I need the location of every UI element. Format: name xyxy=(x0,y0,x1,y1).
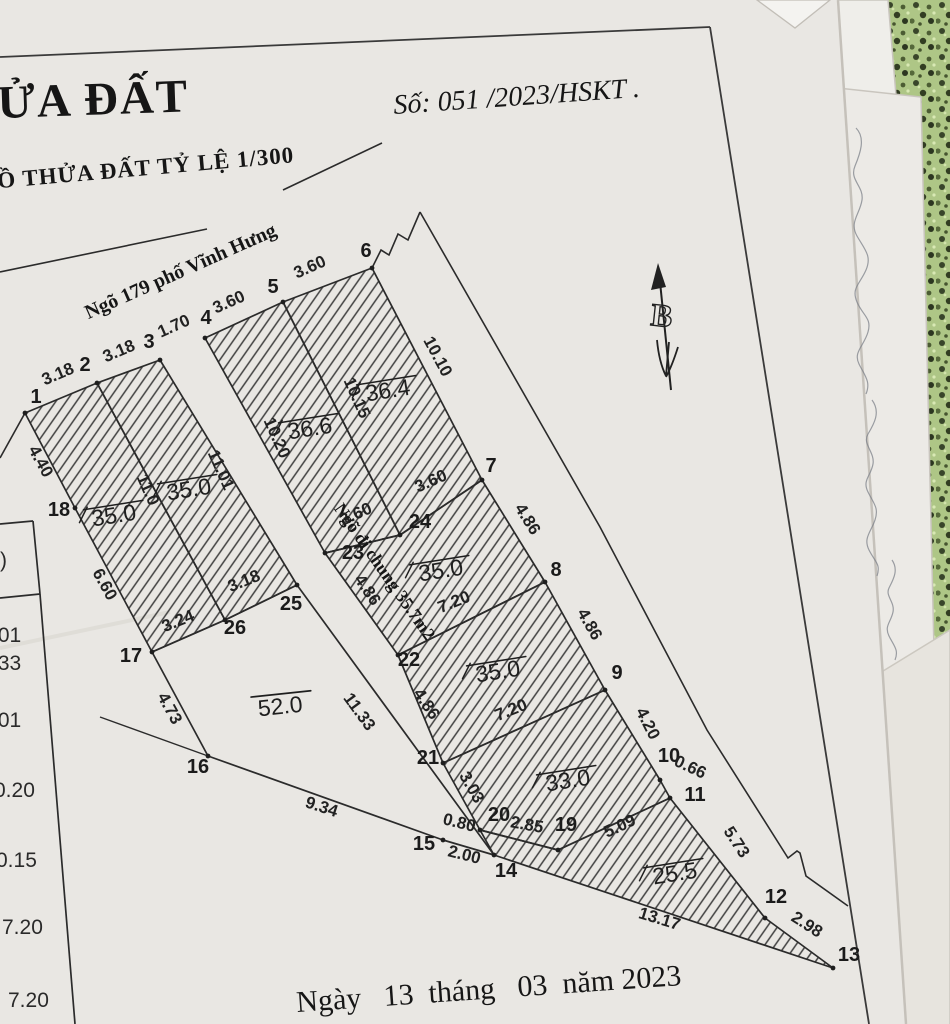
vertex-26-label: 26 xyxy=(224,617,246,639)
vertex-25-label: 25 xyxy=(280,593,302,615)
side-table-row: .01 xyxy=(0,709,21,732)
vertex-18-label: 18 xyxy=(48,499,70,521)
vertex-11-label: 11 xyxy=(684,784,705,806)
photographed-survey-document: ỬA ĐẤT Số: 051 /2023/HSKT . Ồ THỬA ĐẤT T… xyxy=(0,0,950,1024)
vertex-3-label: 3 xyxy=(143,331,154,353)
vertex-17-label: 17 xyxy=(120,645,142,667)
vertex-19-label: 19 xyxy=(555,814,577,836)
vertex-6-label: 6 xyxy=(360,240,371,262)
vertex-7-label: 7 xyxy=(485,455,496,477)
vertex-13-label: 13 xyxy=(838,944,860,966)
side-table-row: 7.20 xyxy=(8,989,49,1012)
vertex-20-label: 20 xyxy=(488,804,510,826)
vertex-14-label: 14 xyxy=(495,860,518,882)
side-table-row: 7.20 xyxy=(2,916,43,939)
vertex-4-label: 4 xyxy=(200,307,212,329)
vertex-24-label: 24 xyxy=(409,511,432,533)
side-table-row: 0.15 xyxy=(0,849,37,872)
vertex-5-label: 5 xyxy=(267,276,278,298)
vertex-8-label: 8 xyxy=(550,559,561,581)
vertex-22-label: 22 xyxy=(398,649,420,671)
side-table-row: .33 xyxy=(0,652,21,675)
vertex-15-label: 15 xyxy=(413,833,435,855)
vertex-21-label: 21 xyxy=(417,747,439,769)
vertex-1-label: 1 xyxy=(30,386,41,408)
vertex-2-label: 2 xyxy=(79,354,90,376)
side-table-row: 0.20 xyxy=(0,779,35,802)
vertex-23-label: 23 xyxy=(342,542,364,564)
side-table-row: .01 xyxy=(0,624,21,647)
vertex-12-label: 12 xyxy=(765,886,787,908)
vertex-16-label: 16 xyxy=(187,756,209,778)
side-table-header: ) xyxy=(0,549,7,572)
page-title: ỬA ĐẤT xyxy=(0,69,190,129)
vertex-9-label: 9 xyxy=(611,662,622,684)
north-label: B xyxy=(649,296,674,334)
area-plot-52: 52.0 xyxy=(257,691,304,722)
